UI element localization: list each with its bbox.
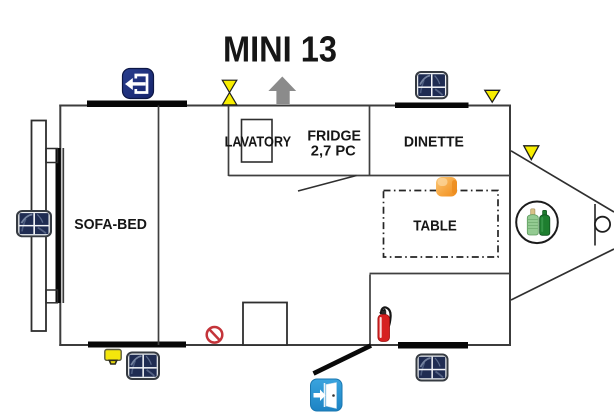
svg-text:MINI 13: MINI 13 (223, 29, 337, 70)
svg-text:2,7 PC: 2,7 PC (311, 143, 356, 160)
svg-text:DINETTE: DINETTE (404, 134, 464, 151)
svg-text:SOFA-BED: SOFA-BED (74, 216, 147, 233)
svg-text:LAVATORY: LAVATORY (225, 134, 292, 151)
svg-text:TABLE: TABLE (413, 218, 457, 235)
